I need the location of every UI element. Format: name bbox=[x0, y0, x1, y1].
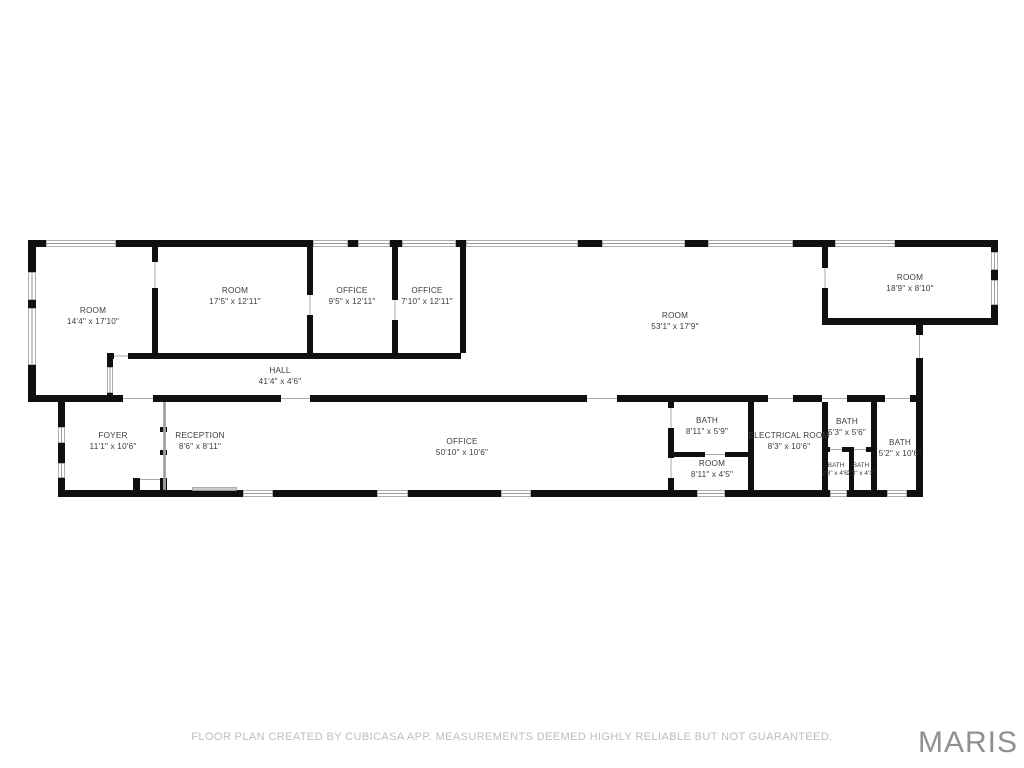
wall-segment bbox=[668, 402, 674, 408]
wall-segment bbox=[116, 240, 313, 247]
wall-segment bbox=[668, 478, 674, 497]
wall-segment bbox=[307, 315, 313, 353]
wall-segment bbox=[273, 490, 377, 497]
wall-segment bbox=[685, 240, 708, 247]
wall-segment bbox=[748, 395, 754, 497]
wall-segment bbox=[107, 359, 113, 367]
wall-segment bbox=[907, 490, 923, 497]
wall-segment bbox=[916, 358, 923, 497]
wall-segment bbox=[578, 240, 602, 247]
wall-segment bbox=[28, 240, 46, 247]
wall-segment bbox=[822, 318, 998, 325]
wall-segment bbox=[392, 247, 398, 300]
wall-segment bbox=[725, 490, 830, 497]
wall-segment bbox=[849, 452, 854, 497]
wall-segment bbox=[822, 447, 830, 452]
maris-logo: MARIS bbox=[918, 726, 1018, 760]
wall-segment bbox=[668, 452, 705, 457]
wall-segment bbox=[348, 240, 358, 247]
wall-segment bbox=[793, 240, 835, 247]
wall-segment bbox=[58, 402, 65, 427]
wall-segment bbox=[28, 395, 123, 402]
wall-segment bbox=[152, 247, 158, 262]
wall-segment bbox=[793, 395, 822, 402]
wall-segment bbox=[991, 240, 998, 252]
wall-segment bbox=[408, 490, 501, 497]
wall-segment bbox=[107, 353, 114, 359]
wall-segment bbox=[822, 247, 828, 268]
wall-segment bbox=[916, 325, 923, 335]
wall-segment bbox=[133, 478, 140, 490]
wall-segment bbox=[28, 247, 36, 272]
wall-segment bbox=[725, 452, 752, 457]
wall-segment bbox=[822, 288, 828, 318]
wall-segment bbox=[133, 490, 243, 497]
wall-segment bbox=[28, 300, 36, 308]
wall-segment bbox=[871, 395, 877, 497]
floor-plan-canvas bbox=[0, 0, 1024, 768]
wall-segment bbox=[58, 443, 65, 463]
wall-segment bbox=[390, 240, 402, 247]
floor-plan-page: ROOM 14'4" x 17'10" ROOM 17'5" x 12'11" … bbox=[0, 0, 1024, 768]
wall-segment bbox=[460, 247, 466, 353]
wall-segment bbox=[310, 395, 587, 402]
wall-segment bbox=[842, 447, 854, 452]
wall-segment bbox=[456, 240, 466, 247]
wall-segment bbox=[991, 270, 998, 280]
wall-segment bbox=[128, 353, 461, 359]
wall-segment bbox=[617, 395, 768, 402]
wall-segment bbox=[392, 320, 398, 353]
wall-segment bbox=[991, 305, 998, 325]
wall-segment bbox=[153, 395, 281, 402]
wall-segment bbox=[152, 288, 158, 353]
wall-segment bbox=[58, 490, 133, 497]
floor-plan-disclaimer: FLOOR PLAN CREATED BY CUBICASA APP. MEAS… bbox=[0, 731, 1024, 743]
wall-segment bbox=[895, 240, 998, 247]
wall-segment bbox=[307, 247, 313, 295]
wall-segment bbox=[847, 395, 885, 402]
